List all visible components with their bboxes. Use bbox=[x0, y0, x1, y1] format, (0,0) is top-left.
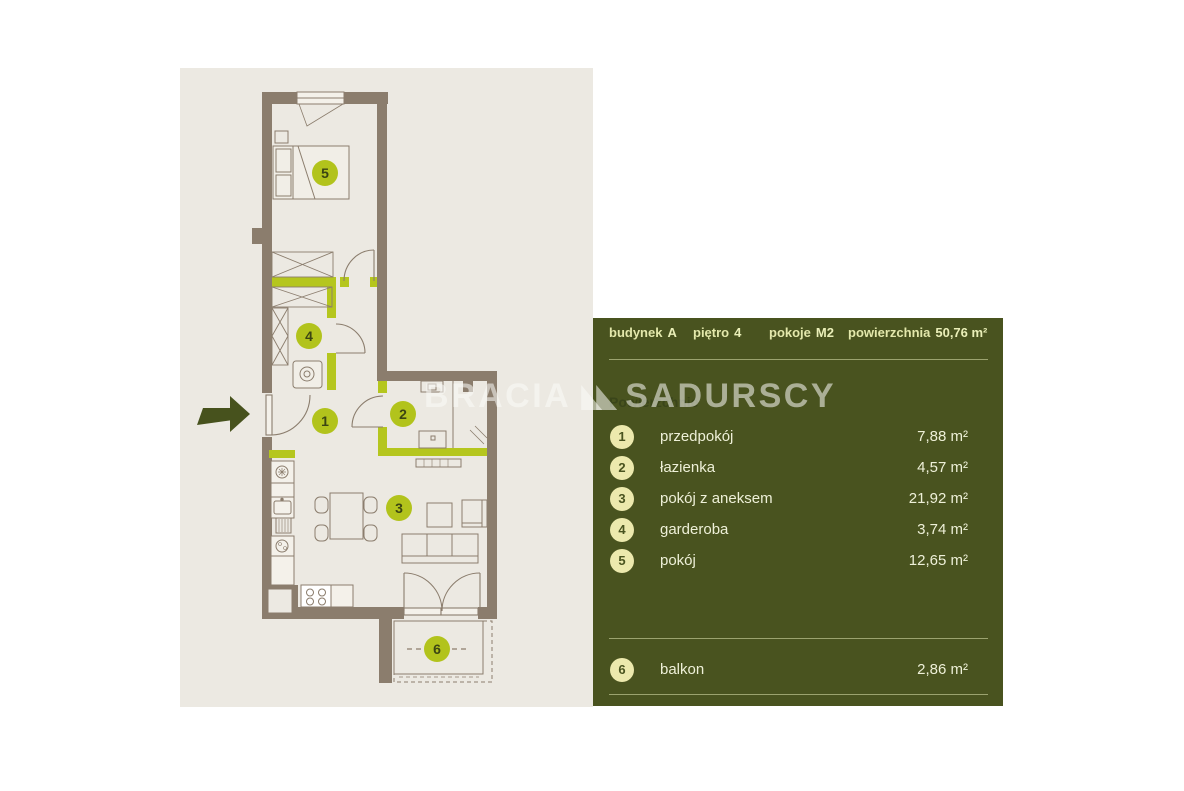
plan-marker-1: 1 bbox=[321, 413, 329, 429]
room-number-badge: 5 bbox=[610, 549, 634, 573]
room-row: 1przedpokój7,88 m² bbox=[593, 421, 1003, 452]
header-item-piętro: piętro4 bbox=[693, 325, 741, 340]
header-item-budynek: budynekA bbox=[609, 325, 677, 340]
room-row: 4garderoba3,74 m² bbox=[593, 514, 1003, 545]
section-label: Powierzchnie bbox=[609, 394, 698, 410]
header-value: 4 bbox=[734, 325, 741, 340]
plan-marker-4: 4 bbox=[305, 328, 313, 344]
entry-arrow-icon bbox=[197, 396, 250, 432]
nightstand bbox=[275, 131, 288, 143]
balcony-doors bbox=[404, 573, 480, 615]
room-row: 3pokój z aneksem21,92 m² bbox=[593, 483, 1003, 514]
room-number-badge: 1 bbox=[610, 425, 634, 449]
room-number-badge: 3 bbox=[610, 487, 634, 511]
room-area: 4,57 m² bbox=[917, 459, 968, 476]
wardrobes bbox=[272, 252, 333, 365]
room-name: przedpokój bbox=[660, 428, 917, 445]
plan-marker-2: 2 bbox=[399, 406, 407, 422]
room-area: 3,74 m² bbox=[917, 521, 968, 538]
header-item-powierzchnia: powierzchnia50,76 m² bbox=[848, 325, 987, 340]
divider bbox=[609, 638, 988, 639]
header-label: powierzchnia bbox=[848, 325, 930, 340]
stove bbox=[301, 585, 353, 607]
room-row: 5pokój12,65 m² bbox=[593, 545, 1003, 576]
room-name: pokój bbox=[660, 552, 909, 569]
divider bbox=[609, 694, 988, 695]
room-row: 6balkon2,86 m² bbox=[593, 654, 1003, 685]
window bbox=[297, 92, 344, 126]
header-value: 50,76 m² bbox=[935, 325, 987, 340]
divider bbox=[609, 359, 988, 360]
room-number-badge: 2 bbox=[610, 456, 634, 480]
room-number-badge: 4 bbox=[610, 518, 634, 542]
room-area: 12,65 m² bbox=[909, 552, 968, 569]
kitchen-units bbox=[271, 461, 294, 585]
header-label: piętro bbox=[693, 325, 729, 340]
room-list: 1przedpokój7,88 m²2łazienka4,57 m²3pokój… bbox=[593, 421, 1003, 576]
plan-marker-5: 5 bbox=[321, 165, 329, 181]
header-item-pokoje: pokojeM2 bbox=[769, 325, 834, 340]
header-label: pokoje bbox=[769, 325, 811, 340]
plan-marker-6: 6 bbox=[433, 641, 441, 657]
header-label: budynek bbox=[609, 325, 662, 340]
room-number-badge: 6 bbox=[610, 658, 634, 682]
floorplan-drawing: 1 2 3 4 5 6 bbox=[180, 68, 593, 707]
room-area: 21,92 m² bbox=[909, 490, 968, 507]
plan-marker-3: 3 bbox=[395, 500, 403, 516]
room-name: łazienka bbox=[660, 459, 917, 476]
room-area: 2,86 m² bbox=[917, 661, 968, 678]
washing-machine-icon bbox=[293, 361, 322, 388]
room-name: pokój z aneksem bbox=[660, 490, 909, 507]
header-value: A bbox=[667, 325, 676, 340]
room-row: 2łazienka4,57 m² bbox=[593, 452, 1003, 483]
info-panel: budynekApiętro4pokojeM2powierzchnia50,76… bbox=[593, 318, 1003, 706]
header-value: M2 bbox=[816, 325, 834, 340]
wall-corner-shaft bbox=[268, 589, 292, 613]
dining-set bbox=[315, 493, 377, 541]
room-area: 7,88 m² bbox=[917, 428, 968, 445]
balcony-list: 6balkon2,86 m² bbox=[593, 654, 1003, 685]
living-furniture bbox=[402, 500, 487, 563]
room-name: balkon bbox=[660, 661, 917, 678]
room-name: garderoba bbox=[660, 521, 917, 538]
